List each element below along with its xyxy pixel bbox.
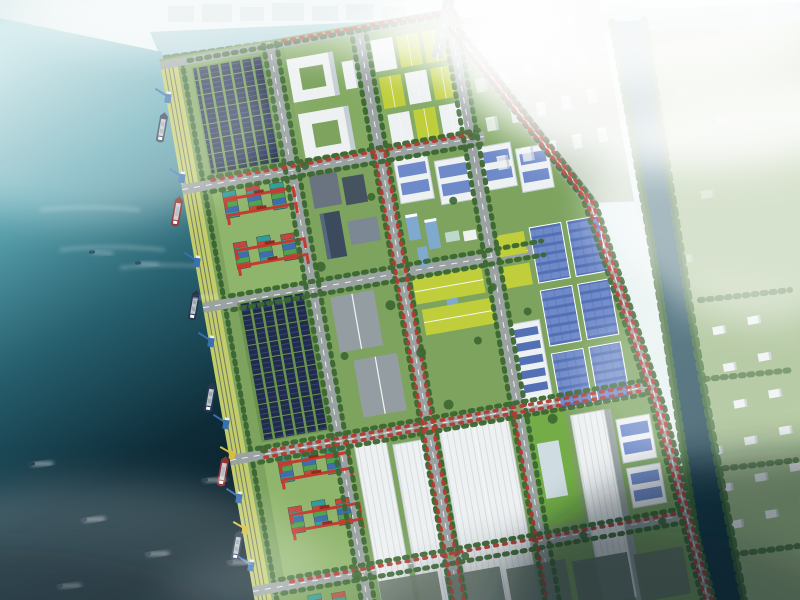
rendering-canvas: Aerial rendering of a coastal industrial… <box>0 0 800 600</box>
aerial-rendering: Aerial rendering of a coastal industrial… <box>0 0 800 600</box>
